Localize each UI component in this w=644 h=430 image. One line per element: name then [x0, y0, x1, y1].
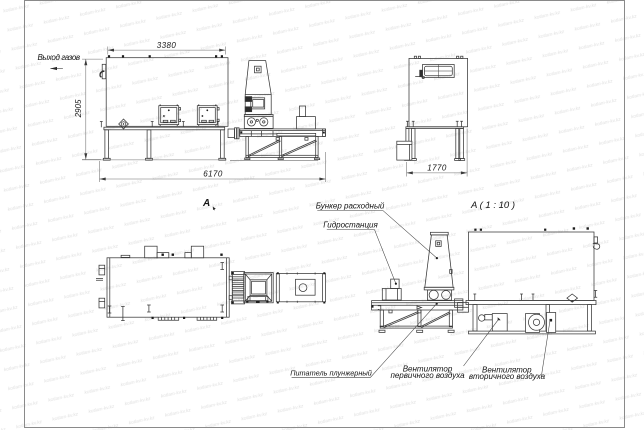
svg-text:3380: 3380 [157, 41, 177, 50]
svg-text:Выход газов: Выход газов [38, 53, 80, 62]
svg-text:Гидростанция: Гидростанция [323, 221, 378, 230]
svg-text:Бункер расходный: Бункер расходный [316, 202, 385, 211]
svg-text:A: A [202, 198, 210, 209]
svg-text:A ( 1 : 10 ): A ( 1 : 10 ) [470, 200, 515, 211]
svg-text:Питатель плунжерный: Питатель плунжерный [290, 368, 372, 377]
svg-text:1770: 1770 [427, 163, 447, 172]
svg-text:6170: 6170 [203, 169, 223, 178]
svg-text:2905: 2905 [74, 99, 83, 118]
svg-text:вторичного воздуха: вторичного воздуха [469, 372, 546, 381]
svg-text:первичного воздуха: первичного воздуха [390, 371, 465, 380]
